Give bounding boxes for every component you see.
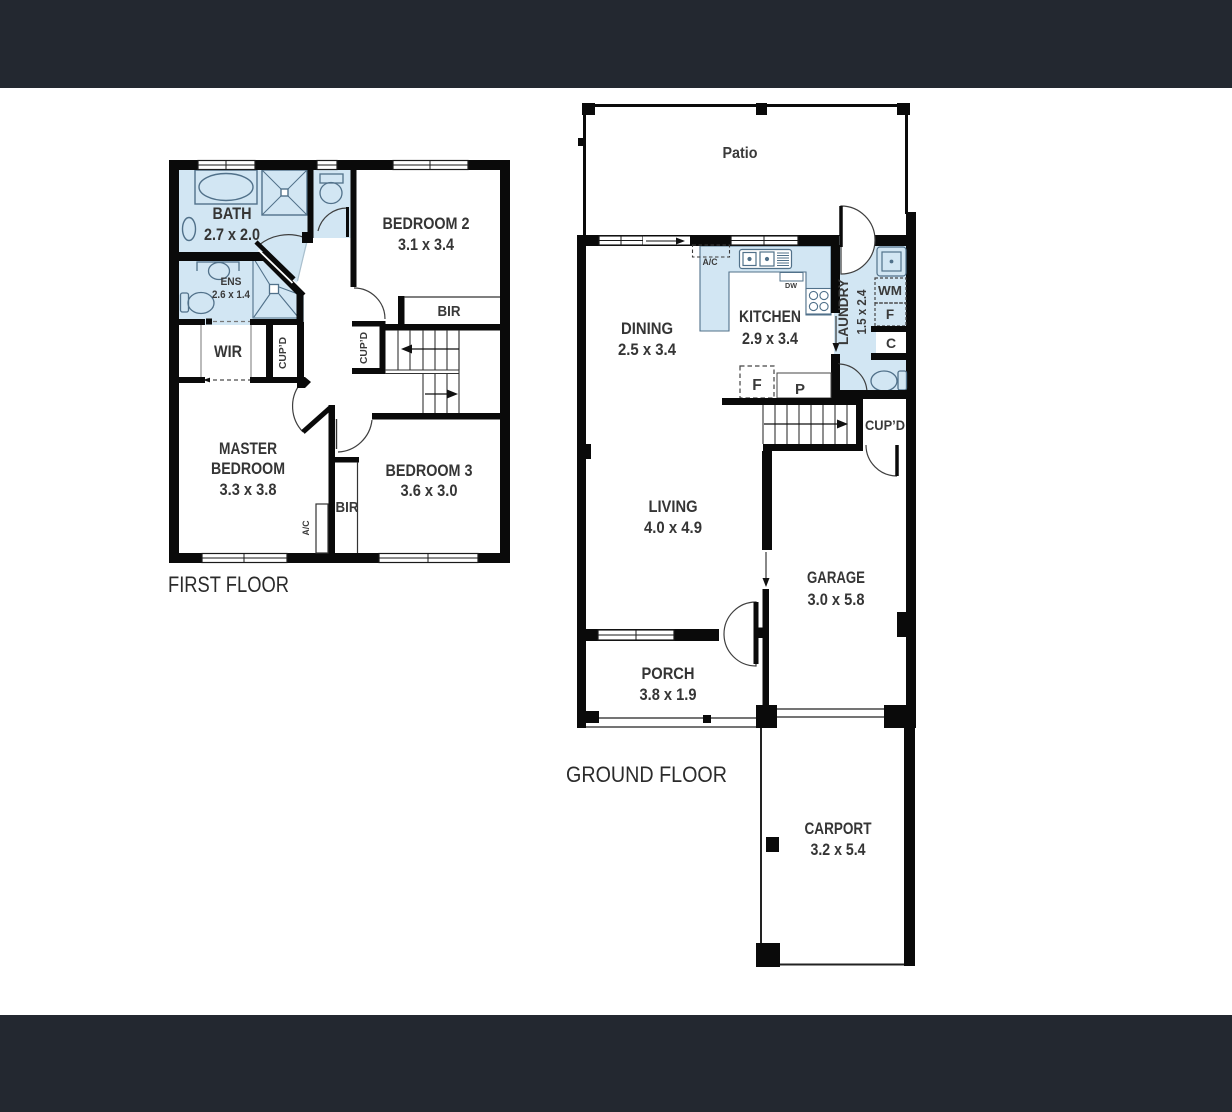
svg-text:3.6 x 3.0: 3.6 x 3.0 <box>401 482 458 500</box>
svg-text:WIR: WIR <box>214 342 242 361</box>
svg-text:3.2 x 5.4: 3.2 x 5.4 <box>811 841 867 859</box>
svg-text:2.5 x 3.4: 2.5 x 3.4 <box>618 341 677 359</box>
svg-text:LIVING: LIVING <box>649 497 698 516</box>
svg-text:BIR: BIR <box>438 304 461 320</box>
svg-text:P: P <box>795 381 805 398</box>
svg-text:2.7 x 2.0: 2.7 x 2.0 <box>204 226 260 244</box>
svg-text:C: C <box>886 335 896 351</box>
svg-text:3.8 x 1.9: 3.8 x 1.9 <box>640 686 697 704</box>
svg-text:BATH: BATH <box>213 204 252 223</box>
svg-text:CUP’D: CUP’D <box>865 418 905 433</box>
svg-text:3.0 x 5.8: 3.0 x 5.8 <box>808 591 865 609</box>
svg-text:BEDROOM 3: BEDROOM 3 <box>386 461 473 480</box>
svg-text:A/C: A/C <box>301 520 312 535</box>
svg-text:PORCH: PORCH <box>642 664 695 683</box>
svg-text:1.5 x 2.4: 1.5 x 2.4 <box>854 289 869 335</box>
svg-text:CUP’D: CUP’D <box>277 337 289 369</box>
svg-text:BEDROOM: BEDROOM <box>211 459 285 478</box>
svg-text:A/C: A/C <box>703 257 718 268</box>
svg-text:LAUNDRY: LAUNDRY <box>835 278 851 345</box>
svg-text:ENS: ENS <box>221 276 242 288</box>
svg-text:DINING: DINING <box>621 319 673 338</box>
svg-text:Patio: Patio <box>723 145 758 162</box>
svg-text:F: F <box>752 377 761 394</box>
svg-text:2.6 x 1.4: 2.6 x 1.4 <box>212 289 251 301</box>
svg-text:GROUND FLOOR: GROUND FLOOR <box>566 762 727 787</box>
svg-text:DW: DW <box>785 281 798 290</box>
svg-text:MASTER: MASTER <box>219 439 277 458</box>
svg-text:BEDROOM 2: BEDROOM 2 <box>383 214 470 233</box>
svg-text:CARPORT: CARPORT <box>805 819 872 838</box>
svg-text:F: F <box>886 307 894 322</box>
svg-text:3.3 x 3.8: 3.3 x 3.8 <box>220 481 277 499</box>
svg-text:WM: WM <box>878 283 902 298</box>
svg-text:FIRST FLOOR: FIRST FLOOR <box>168 572 289 597</box>
svg-text:BIR: BIR <box>336 500 359 516</box>
svg-text:CUP’D: CUP’D <box>358 332 370 364</box>
svg-text:4.0 x 4.9: 4.0 x 4.9 <box>644 519 702 537</box>
svg-text:2.9 x 3.4: 2.9 x 3.4 <box>742 330 799 348</box>
svg-text:3.1 x 3.4: 3.1 x 3.4 <box>398 236 455 254</box>
svg-text:GARAGE: GARAGE <box>807 568 865 587</box>
svg-text:KITCHEN: KITCHEN <box>739 307 801 326</box>
